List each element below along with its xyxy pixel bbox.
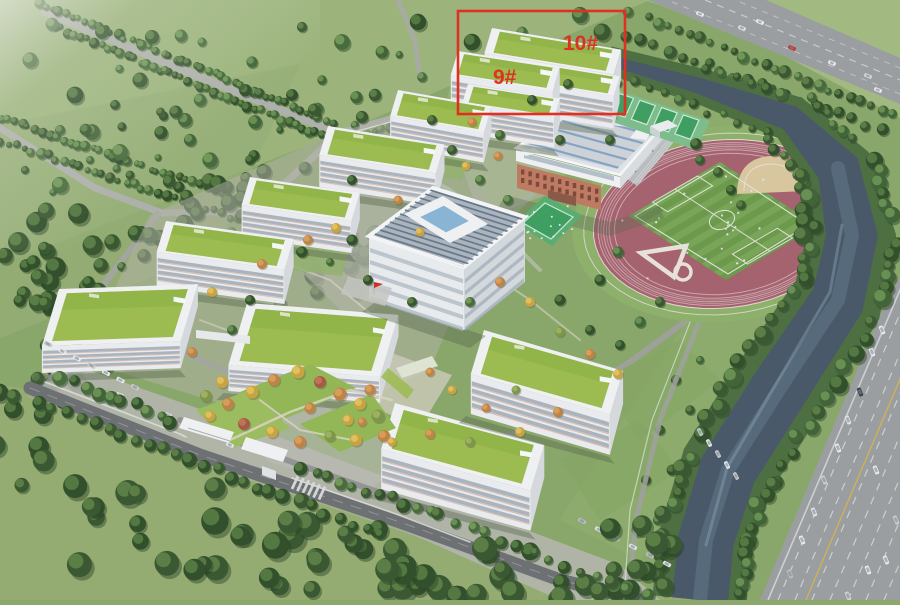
svg-text:9#: 9# (493, 66, 517, 89)
svg-text:10#: 10# (563, 32, 598, 55)
